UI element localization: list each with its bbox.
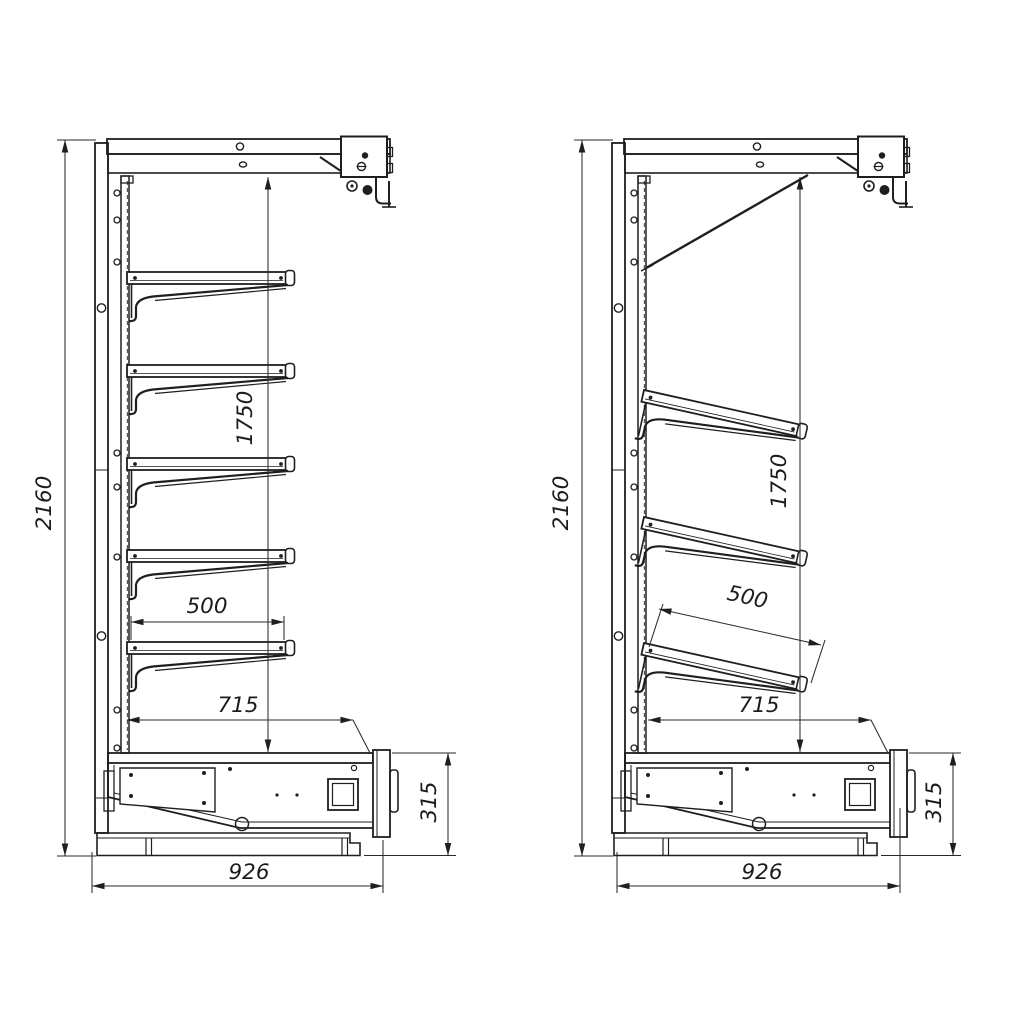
mounting-holes <box>631 190 637 751</box>
dim-shelf-depth: 500 <box>725 581 770 614</box>
dim-overall-height: 2160 <box>32 476 57 531</box>
inclined-shelf <box>633 642 807 728</box>
shelves <box>633 389 807 728</box>
access-panel <box>120 768 215 812</box>
bolt-hole <box>614 304 622 312</box>
dim-overall-height: 2160 <box>549 476 574 531</box>
base-unit <box>614 750 915 856</box>
dim-base-height: 315 <box>922 781 947 822</box>
plinth <box>97 833 360 856</box>
dim-display-height: 1750 <box>233 391 258 446</box>
dim-overall-depth: 926 <box>741 860 782 885</box>
bolt-hole <box>614 632 622 640</box>
back-panel <box>612 143 625 833</box>
screw-icon <box>879 152 885 158</box>
view-inclined-shelves: 2160 1750 500 715 315 <box>549 137 961 894</box>
dim-well-depth: 715 <box>738 693 779 718</box>
shelf <box>127 641 295 692</box>
screw-icon <box>753 143 760 150</box>
bumper <box>390 770 398 812</box>
shelf <box>127 549 295 600</box>
canopy <box>624 137 910 178</box>
dim-display-height: 1750 <box>767 454 792 509</box>
lamp-icon <box>363 185 373 195</box>
lamp-icon <box>880 185 890 195</box>
back-panel <box>95 143 108 833</box>
dim-base-height: 315 <box>417 781 442 822</box>
access-panel <box>637 768 732 812</box>
shelf <box>127 364 295 415</box>
shelf <box>127 457 295 508</box>
base-unit <box>97 750 398 856</box>
shelf <box>127 271 295 322</box>
brace <box>320 157 343 173</box>
lamp-assembly <box>347 177 396 207</box>
shelf-standard-upright <box>631 176 650 753</box>
dim-well-depth: 715 <box>217 693 258 718</box>
technical-drawing: 2160 1750 500 715 315 <box>0 0 1024 1024</box>
dim-overall-depth: 926 <box>228 860 269 885</box>
mounting-holes <box>114 190 120 751</box>
diagonal-brace <box>641 175 808 271</box>
bolt-hole <box>97 304 105 312</box>
view-straight-shelves: 2160 1750 500 715 315 <box>32 137 456 894</box>
rivet-icon <box>239 162 246 167</box>
bumper <box>907 770 915 812</box>
dim-shelf-depth: 500 <box>186 594 227 619</box>
screw-icon <box>236 143 243 150</box>
base-front-panel <box>373 750 390 837</box>
canopy <box>107 137 393 178</box>
base-front-panel <box>890 750 907 837</box>
technical-drawing-page: 2160 1750 500 715 315 <box>0 0 1024 1024</box>
screw-icon <box>362 152 368 158</box>
rivet-icon <box>756 162 763 167</box>
bolt-hole <box>97 632 105 640</box>
lamp-assembly <box>864 177 913 207</box>
shelves <box>127 271 295 692</box>
plinth <box>614 833 877 856</box>
inclined-shelf <box>633 516 807 602</box>
brace <box>837 157 860 173</box>
